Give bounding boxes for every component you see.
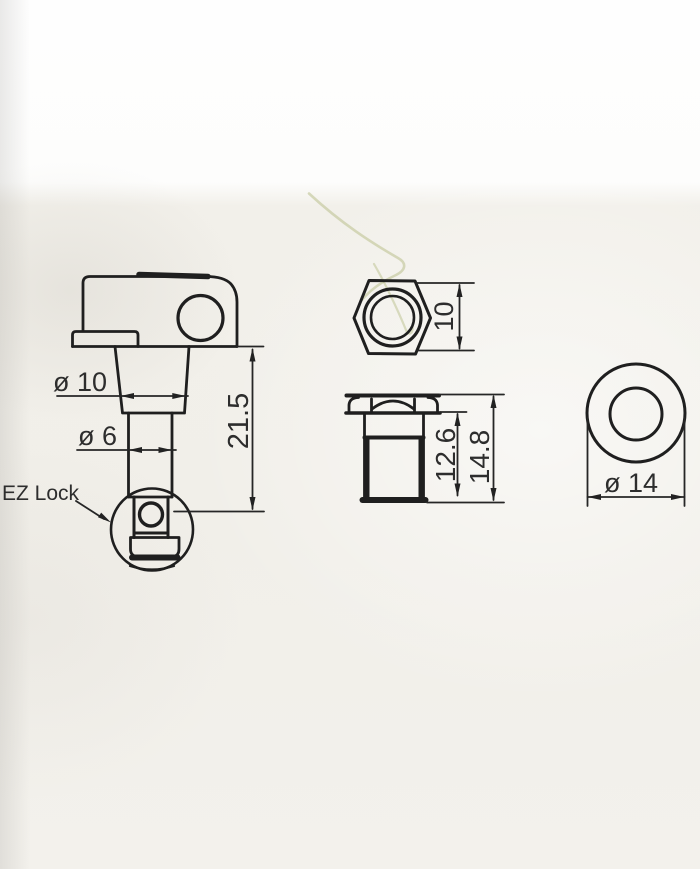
ez-lock-label: EZ Lock [2, 482, 80, 505]
tuner-flange [73, 332, 139, 347]
dim215-value: 21.5 [223, 393, 255, 449]
dim148-value: 14.8 [464, 430, 495, 485]
dia10-value: ø 10 [53, 367, 107, 397]
dia6-value: ø 6 [78, 421, 117, 451]
bushing-head-facets [349, 398, 438, 412]
dimension-12-6: 12.6 [430, 412, 467, 497]
washer-inner-circle [610, 388, 662, 440]
ez-lock-leader-arrow [98, 513, 111, 523]
dia14-value: ø 14 [604, 468, 658, 498]
nut10-value: 10 [429, 301, 459, 331]
ez-lock-detail-bubble [111, 489, 193, 571]
dim126-value: 12.6 [430, 428, 461, 483]
tuner-boss [115, 347, 189, 414]
technical-drawing: EZ Lock ø 10 ø 6 21.5 [0, 0, 700, 869]
dimension-nut-10: 10 [417, 283, 474, 351]
string-hole [140, 503, 163, 526]
bushing-sleeve-sides [368, 438, 421, 498]
bushing-body-sides [365, 413, 424, 499]
washer-outer-circle [587, 364, 685, 462]
lock-collar [131, 538, 180, 557]
string-post [129, 413, 173, 497]
bushing-side-view: 12.6 14.8 [346, 395, 504, 503]
nut-inner-circle [371, 296, 414, 339]
dimension-dia6: ø 6 [77, 421, 176, 453]
fiber-artifact [309, 194, 413, 334]
tuner-side-view: EZ Lock ø 10 ø 6 21.5 [2, 275, 264, 571]
fiber-strand [309, 194, 404, 302]
scanned-page: EZ Lock ø 10 ø 6 21.5 [0, 0, 700, 869]
string-post-hole [178, 296, 223, 341]
tuner-body-top-edge [139, 275, 208, 277]
washer-top-view: ø 14 [587, 364, 685, 506]
